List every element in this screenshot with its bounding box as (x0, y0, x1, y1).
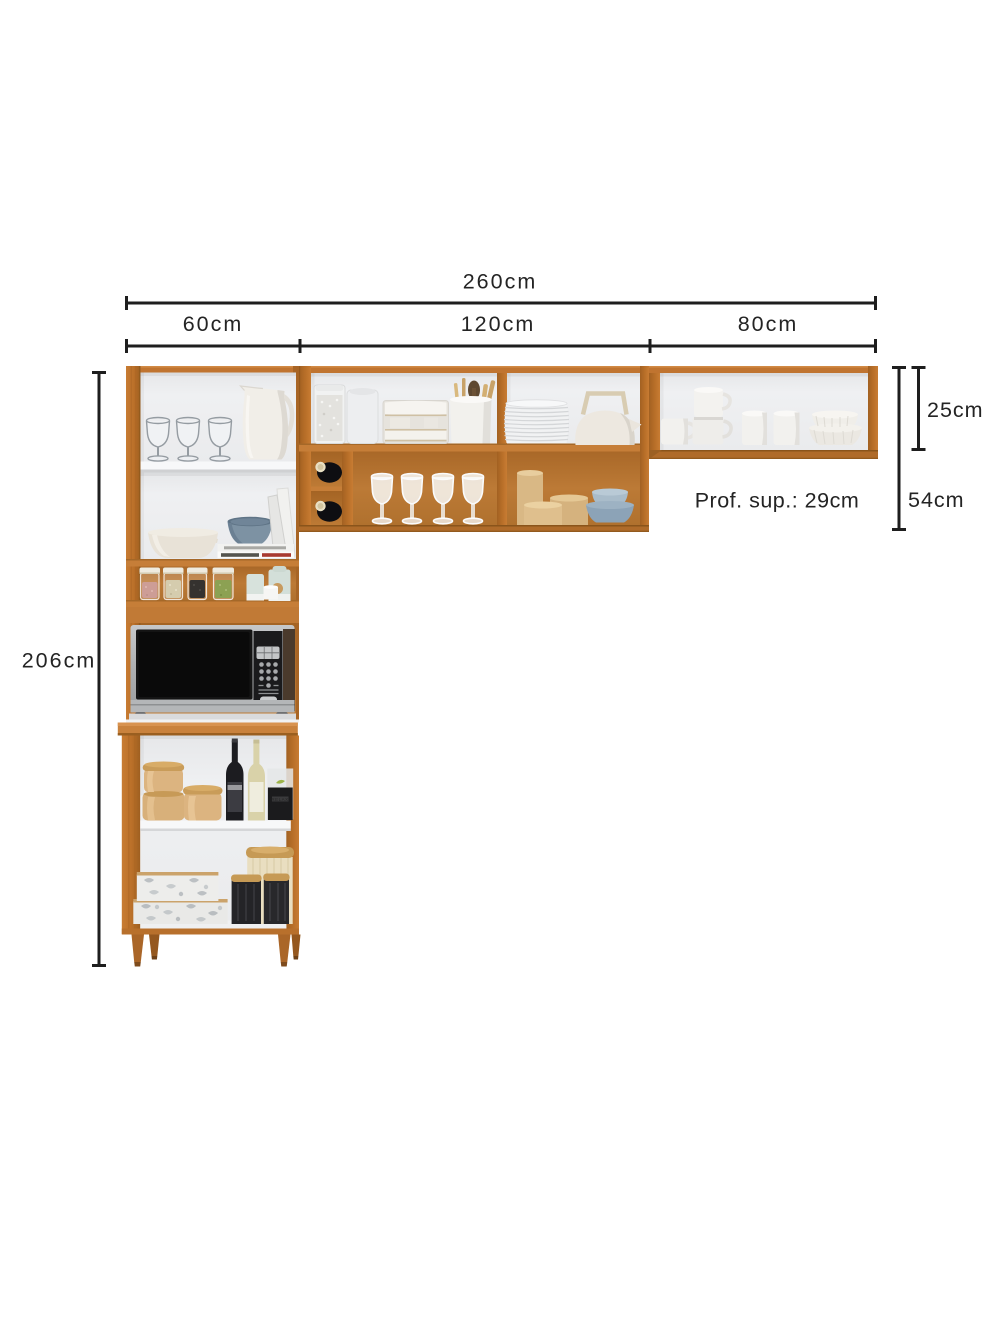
svg-text:Prof. sup.: 29cm: Prof. sup.: 29cm (695, 489, 860, 513)
svg-text:260cm: 260cm (463, 270, 538, 294)
svg-text:54cm: 54cm (908, 488, 965, 512)
svg-text:RELAX: RELAX (271, 797, 288, 802)
svg-text:25cm: 25cm (927, 398, 984, 422)
svg-text:120cm: 120cm (461, 312, 536, 336)
svg-text:80cm: 80cm (738, 312, 799, 336)
svg-text:60cm: 60cm (183, 312, 244, 336)
svg-text:206cm: 206cm (22, 649, 97, 673)
